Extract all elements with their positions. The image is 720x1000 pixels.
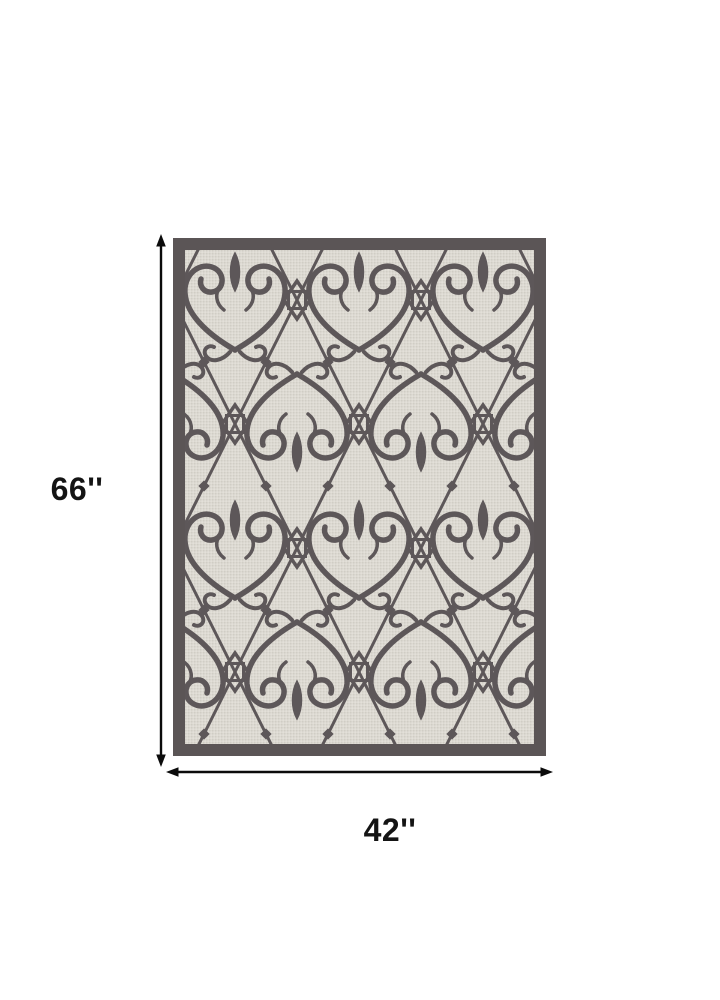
arrowhead-up-icon <box>156 234 166 247</box>
arrowhead-left-icon <box>166 767 179 777</box>
height-dimension-arrow <box>156 234 166 767</box>
rug-image <box>173 238 546 756</box>
arrowhead-down-icon <box>156 755 166 768</box>
width-dimension-arrow <box>166 767 553 777</box>
height-dimension-label: 66'' <box>32 471 122 507</box>
width-dimension-label: 42'' <box>345 812 435 848</box>
product-dimension-diagram: 66'' 42'' <box>0 0 720 1000</box>
arrowhead-right-icon <box>541 767 554 777</box>
rug-scrollwork-pattern <box>185 250 534 744</box>
